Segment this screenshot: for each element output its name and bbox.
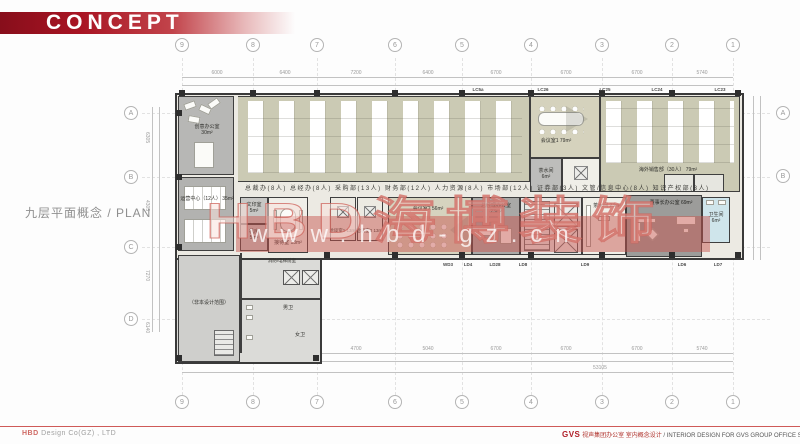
grid-bubble-left-D: D: [124, 312, 138, 326]
room-label-tea1: 茶水间: [538, 168, 553, 174]
room-area-creative: 30m²: [201, 130, 212, 136]
elevator: [283, 270, 300, 285]
grid-bubble-top-3: 3: [595, 38, 609, 52]
room-label-wc-exec: 卫生间: [708, 212, 723, 218]
grid-bubble-bottom-5: 5: [455, 395, 469, 409]
room-area-chairman: 69m²: [681, 200, 692, 206]
dim-top-7: 5740: [696, 70, 707, 76]
grid-bubble-bottom-8: 8: [246, 395, 260, 409]
dim-top-6: 6700: [631, 70, 642, 76]
dim-bottom-4: 6700: [490, 346, 501, 352]
stairs: [214, 330, 234, 356]
grid-bubble-top-5: 5: [455, 38, 469, 52]
dim-bottom-3: 5040: [422, 346, 433, 352]
wc-fixture: [718, 200, 726, 205]
wall: [240, 253, 242, 353]
grid-bubble-bottom-1: 1: [726, 395, 740, 409]
dim-left-1: 4305: [144, 200, 150, 211]
projection-screen-cone: [566, 106, 588, 132]
room-area-meeting1: 79m²: [560, 138, 571, 144]
code-top-2: LC25: [599, 87, 610, 92]
code-top-1: LC26: [537, 87, 548, 92]
grid-bubble-bottom-9: 9: [175, 395, 189, 409]
watermark-url: www.hbd-gz.cn: [250, 221, 582, 249]
code-bottom-2: LD28: [489, 262, 500, 267]
page-title: CONCEPT: [46, 12, 184, 34]
room-area-tea1: 6m²: [542, 174, 551, 180]
wc-fixture: [246, 315, 253, 320]
wall: [240, 298, 322, 300]
grid-bubble-top-9: 9: [175, 38, 189, 52]
grid-bubble-right-A: A: [776, 106, 790, 120]
grid-bubble-top-8: 8: [246, 38, 260, 52]
dim-bottom-6: 6700: [631, 346, 642, 352]
code-bottom-3: LD8: [519, 262, 528, 267]
grid-bubble-top-2: 2: [665, 38, 679, 52]
dim-line-left-1: [152, 107, 153, 332]
dim-top-5: 6700: [560, 70, 571, 76]
code-bottom-0: WD3: [443, 262, 453, 267]
code-bottom-4: LD9: [581, 262, 590, 267]
dim-top-3: 6400: [422, 70, 433, 76]
dim-bottom-2: 4700: [350, 346, 361, 352]
dim-top-1: 6400: [279, 70, 290, 76]
grid-bubble-left-C: C: [124, 240, 138, 254]
grid-bubble-bottom-7: 7: [310, 395, 324, 409]
code-bottom-5: LD6: [678, 262, 687, 267]
dim-left-0: 6305: [144, 132, 150, 143]
dim-bottom-5: 6700: [560, 346, 571, 352]
room-label-creative: 创意办公室: [194, 124, 219, 130]
room-area-wc-exec: 6m²: [712, 218, 721, 224]
dim-left-2: 7270: [144, 270, 150, 281]
grid-bubble-top-7: 7: [310, 38, 324, 52]
workstation-rows: [248, 101, 522, 173]
dim-bottom-7: 5740: [696, 346, 707, 352]
room-label-wc-female: 女卫: [295, 332, 305, 338]
presentation-sheet: CONCEPT 九层平面概念 / PLAN 6000 6400 7200 640…: [0, 0, 800, 444]
grid-bubble-right-B: B: [776, 169, 790, 183]
grid-bubble-bottom-2: 2: [665, 395, 679, 409]
dim-line-right-1: [753, 96, 754, 260]
footer-divider: [0, 426, 800, 427]
dim-line-top-1: [182, 77, 733, 78]
four-seat-table: [574, 166, 588, 180]
grid-bubble-top-6: 6: [388, 38, 402, 52]
dim-line-overall: [182, 372, 733, 373]
workstation-rows: [606, 101, 734, 163]
grid-bubble-left-A: A: [124, 106, 138, 120]
room-label-overseas: 海外销售部（30人）: [639, 167, 685, 173]
grid-bubble-left-B: B: [124, 170, 138, 184]
footer-company-brand: HBD: [22, 430, 39, 437]
footer-brand-gvs: GVS: [562, 430, 580, 439]
room-label-lobby: 消防/电梯前室: [268, 258, 296, 263]
dim-line-top-2: [182, 85, 733, 86]
footer-company-text: Design Co(GZ) , LTD: [41, 430, 116, 437]
room-area-overseas: 79m²: [686, 167, 697, 173]
code-top-4: LC23: [714, 87, 725, 92]
code-bottom-1: LD4: [464, 262, 473, 267]
footer-project-en: / INTERIOR DESIGN FOR GVS GROUP OFFICE S…: [662, 433, 800, 439]
grid-bubble-bottom-6: 6: [388, 395, 402, 409]
dim-top-0: 6000: [211, 70, 222, 76]
dim-left-3: 6140: [144, 322, 150, 333]
elevator: [302, 270, 319, 285]
plan-title: 九层平面概念 / PLAN: [25, 204, 151, 221]
room-label-meeting1: 会议室1: [541, 138, 559, 144]
footer-company: HBD Design Co(GZ) , LTD: [22, 430, 116, 437]
dim-line-left-2: [159, 107, 160, 332]
grid-bubble-top-4: 4: [524, 38, 538, 52]
grid-bubble-bottom-3: 3: [595, 395, 609, 409]
room-label-wc-male: 男卫: [283, 305, 293, 311]
footer-project: GVS 视声集团办公室 室内概念设计 / INTERIOR DESIGN FOR…: [562, 430, 800, 439]
dim-line-right-2: [760, 96, 761, 260]
wc-fixture: [246, 305, 253, 310]
wc-fixture: [246, 335, 253, 340]
meeting-table: [194, 142, 214, 168]
wc-fixture: [706, 200, 714, 205]
dim-top-2: 7200: [350, 70, 361, 76]
dim-top-4: 6700: [490, 70, 501, 76]
code-bottom-6: LD7: [714, 262, 723, 267]
dim-overall: 53105: [593, 365, 607, 371]
code-top-3: LC24: [651, 87, 662, 92]
grid-bubble-top-1: 1: [726, 38, 740, 52]
grid-bubble-bottom-4: 4: [524, 395, 538, 409]
footer-project-cn: 视声集团办公室 室内概念设计: [582, 433, 662, 439]
room-label-out-scope: （非本设计范围）: [189, 300, 229, 306]
code-top-0: LC5a: [472, 87, 483, 92]
